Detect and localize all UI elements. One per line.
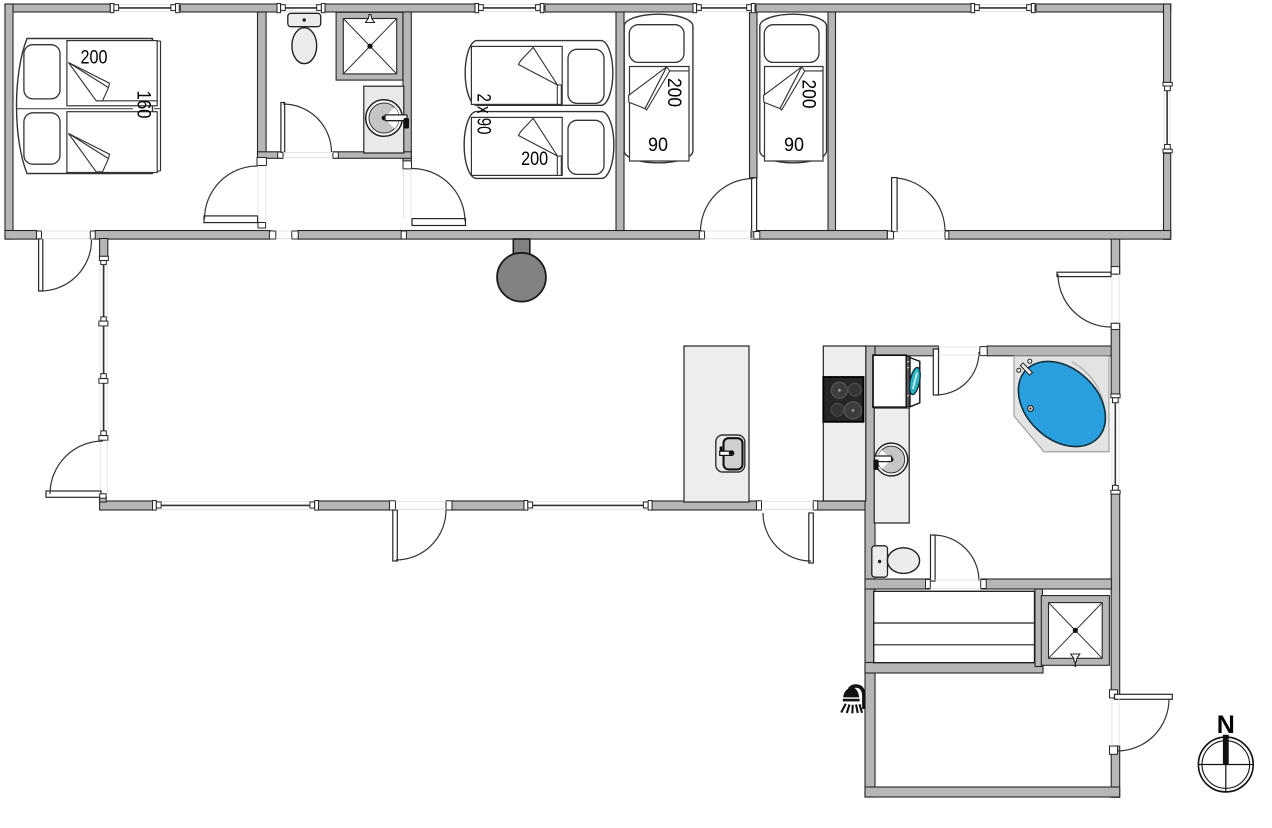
- svg-text:200: 200: [663, 78, 685, 107]
- svg-text:200: 200: [81, 47, 108, 69]
- svg-text:200: 200: [521, 148, 548, 170]
- svg-text:2 x 90: 2 x 90: [473, 94, 495, 135]
- svg-text:N: N: [1217, 711, 1235, 739]
- svg-text:160: 160: [133, 91, 155, 119]
- svg-text:90: 90: [648, 134, 668, 156]
- svg-text:200: 200: [798, 80, 820, 109]
- svg-text:90: 90: [784, 134, 804, 156]
